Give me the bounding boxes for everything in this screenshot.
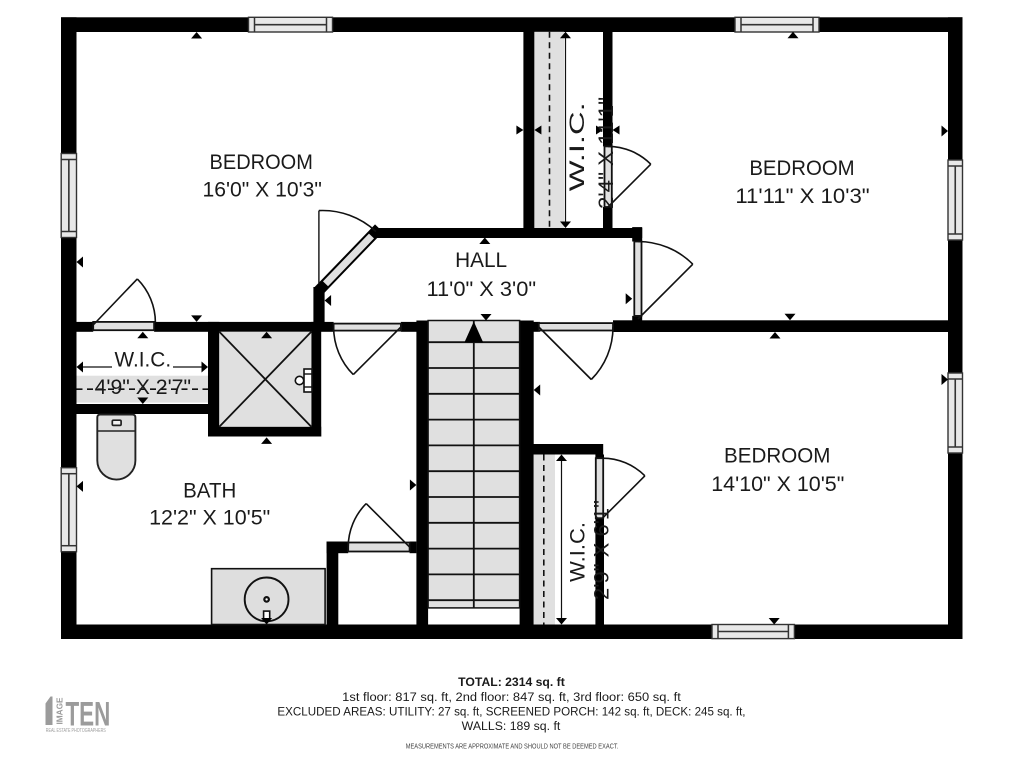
svg-text:4'9" X 2'7": 4'9" X 2'7"	[95, 375, 191, 399]
svg-text:BEDROOM: BEDROOM	[724, 444, 830, 468]
svg-text:1st floor: 817 sq. ft, 2nd flo: 1st floor: 817 sq. ft, 2nd floor: 847 sq…	[342, 692, 681, 704]
svg-text:W.I.C.: W.I.C.	[566, 522, 590, 582]
svg-text:2'4" X 11'1": 2'4" X 11'1"	[594, 97, 618, 209]
svg-text:HALL: HALL	[455, 248, 507, 272]
svg-text:BATH: BATH	[183, 478, 236, 502]
svg-text:W.I.C.: W.I.C.	[565, 102, 589, 191]
svg-text:MEASUREMENTS ARE APPROXIMATE A: MEASUREMENTS ARE APPROXIMATE AND SHOULD …	[406, 742, 619, 751]
svg-text:W.I.C.: W.I.C.	[115, 348, 172, 372]
svg-text:BEDROOM: BEDROOM	[210, 150, 313, 174]
svg-text:TOTAL: 2314 sq. ft: TOTAL: 2314 sq. ft	[458, 677, 565, 689]
svg-text:11'0" X 3'0": 11'0" X 3'0"	[427, 277, 537, 301]
svg-text:BEDROOM: BEDROOM	[749, 156, 854, 180]
svg-text:14'10" X 10'5": 14'10" X 10'5"	[711, 472, 844, 496]
svg-text:REAL ESTATE PHOTOGRAPHERS: REAL ESTATE PHOTOGRAPHERS	[46, 728, 106, 734]
svg-text:2'9" X 6'1": 2'9" X 6'1"	[590, 500, 614, 600]
svg-text:WALLS: 189 sq. ft: WALLS: 189 sq. ft	[462, 721, 561, 733]
svg-text:11'11" X 10'3": 11'11" X 10'3"	[735, 184, 869, 208]
svg-text:16'0" X 10'3": 16'0" X 10'3"	[202, 178, 322, 202]
svg-text:12'2" X 10'5": 12'2" X 10'5"	[149, 506, 270, 530]
svg-text:EXCLUDED AREAS: UTILITY: 27 sq: EXCLUDED AREAS: UTILITY: 27 sq. ft, SCRE…	[277, 707, 745, 719]
svg-text:IMAGE: IMAGE	[56, 697, 65, 725]
